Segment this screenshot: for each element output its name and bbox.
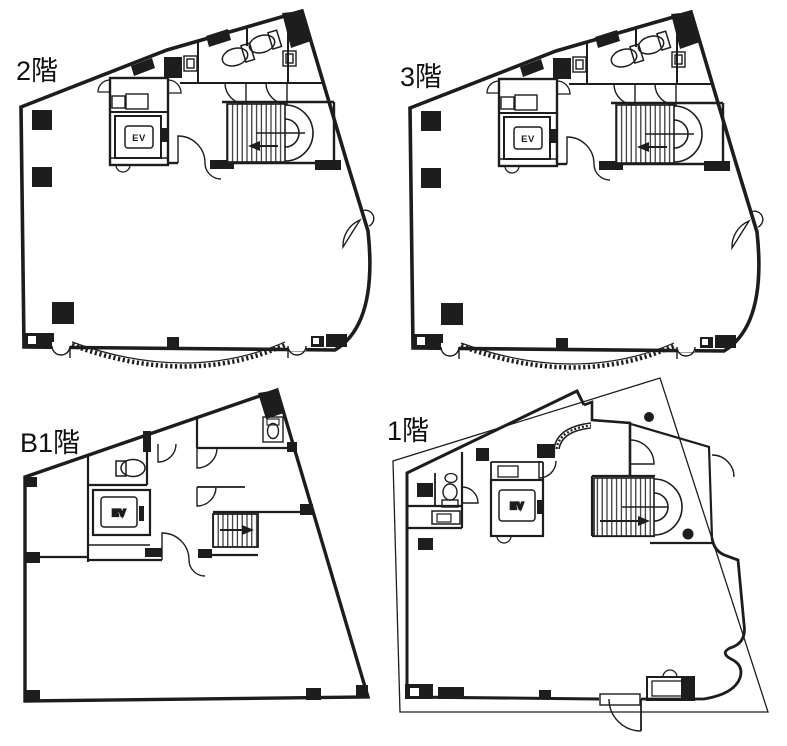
floor-plan-2f: EV xyxy=(21,11,374,367)
toilet-icon xyxy=(443,484,457,500)
column-dot xyxy=(683,529,694,540)
door-arc xyxy=(539,461,556,478)
floor-plan-drawing-3f xyxy=(410,12,763,368)
floor-plan-3f: EV xyxy=(410,12,763,368)
column-dot xyxy=(644,412,654,422)
floor-plan-sheet: EV 2階 EV 3階 xyxy=(0,0,787,746)
elevator-label: EV xyxy=(510,501,524,512)
floor-label-3f: 3階 xyxy=(400,62,442,92)
column xyxy=(539,690,551,699)
toilet-icon xyxy=(116,460,145,477)
column xyxy=(438,687,464,699)
elevator-label: EV xyxy=(112,508,126,519)
stairs xyxy=(213,514,258,547)
elevator-label: EV xyxy=(132,133,146,144)
floor-label-2f: 2階 xyxy=(16,56,58,86)
elevator-door-mark xyxy=(139,506,144,521)
curved-glass-wall xyxy=(554,423,591,449)
elevator-door-mark xyxy=(537,500,542,514)
floor-plans-canvas: EV 2階 EV 3階 xyxy=(0,0,787,746)
door-arc xyxy=(158,444,176,462)
floor-plan-drawing-2f xyxy=(21,11,374,367)
column xyxy=(306,688,321,700)
column xyxy=(356,685,368,697)
floor-label-1f: 1階 xyxy=(387,416,429,446)
floor-plan-1f: EV xyxy=(393,378,768,731)
door-arc xyxy=(197,448,217,468)
stairs xyxy=(594,478,682,536)
door-arc xyxy=(197,487,216,506)
sink-icon xyxy=(445,474,457,483)
interior-walls xyxy=(408,449,712,543)
floor-label-b1: B1階 xyxy=(20,428,80,458)
door-arc xyxy=(162,533,189,560)
outer-wall xyxy=(407,391,744,699)
door-arc xyxy=(462,487,478,503)
urinal-icon xyxy=(263,417,283,442)
counter-icon xyxy=(498,466,518,477)
column xyxy=(25,690,40,701)
door-arc xyxy=(712,455,734,477)
door-arc xyxy=(630,440,654,464)
elevator-label: EV xyxy=(521,134,535,145)
door-arc xyxy=(189,560,205,576)
toilet-area xyxy=(432,474,460,525)
site-boundary xyxy=(393,378,768,712)
column xyxy=(25,477,37,487)
structural-fills xyxy=(405,412,694,700)
